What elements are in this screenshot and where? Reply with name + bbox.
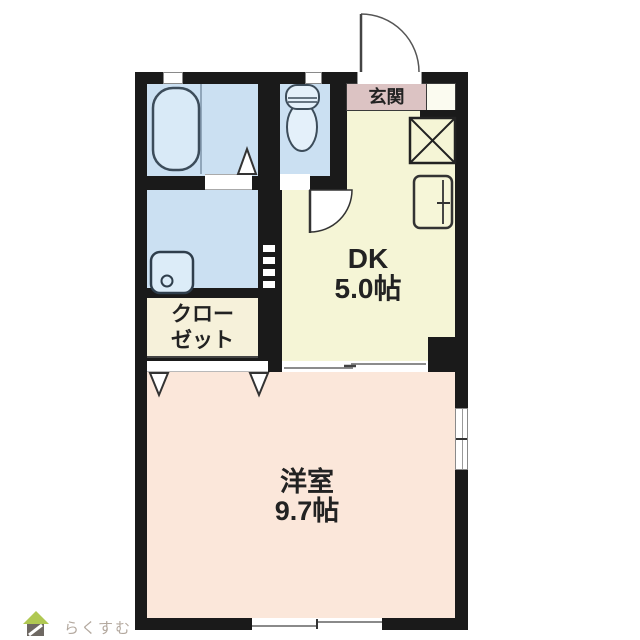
room-bathroom xyxy=(147,84,258,176)
washroom-door-mark xyxy=(263,281,275,288)
logo-text: らくすむ xyxy=(64,617,132,638)
closet-door-track xyxy=(147,361,268,372)
wall-jog xyxy=(428,337,456,372)
window-pane-line xyxy=(252,625,318,627)
dk-label: DK xyxy=(298,244,438,274)
toilet-window-icon xyxy=(305,72,322,84)
dk-size-label: 5.0帖 xyxy=(298,274,438,304)
entrance-door-arc-icon xyxy=(361,14,419,72)
western-room-label-block: 洋室 9.7帖 xyxy=(227,468,387,526)
bath-window-icon xyxy=(163,72,183,84)
window-divider xyxy=(456,438,467,440)
washroom-door-mark xyxy=(263,245,275,252)
wall-segment xyxy=(420,110,456,119)
toilet-doorway xyxy=(280,174,310,190)
washroom-door-mark xyxy=(263,269,275,276)
window-center-tick xyxy=(316,619,318,629)
western-side-window-icon xyxy=(455,408,468,470)
western-bottom-window-icon xyxy=(252,618,382,630)
washroom-door-mark xyxy=(263,257,275,264)
dk-label-block: DK 5.0帖 xyxy=(298,244,438,304)
western-room-size-label: 9.7帖 xyxy=(227,497,387,526)
entrance-step-box xyxy=(426,83,456,111)
entrance-label: 玄関 xyxy=(346,84,427,110)
window-pane-line xyxy=(316,621,382,623)
closet-label-block: クロー ゼット xyxy=(147,302,258,354)
page: { "page": { "background": "#ffffff" }, "… xyxy=(0,0,640,640)
logo-house-icon xyxy=(23,611,49,636)
entrance-doorway xyxy=(357,72,422,84)
closet-label-line1: クロー xyxy=(147,302,258,328)
western-room-label: 洋室 xyxy=(227,468,387,497)
closet-label-line2: ゼット xyxy=(147,328,258,354)
room-dk xyxy=(347,110,455,361)
bath-doorway xyxy=(205,174,252,190)
room-washroom xyxy=(147,190,258,288)
sliding-door-track xyxy=(282,361,428,372)
room-toilet xyxy=(280,84,330,176)
